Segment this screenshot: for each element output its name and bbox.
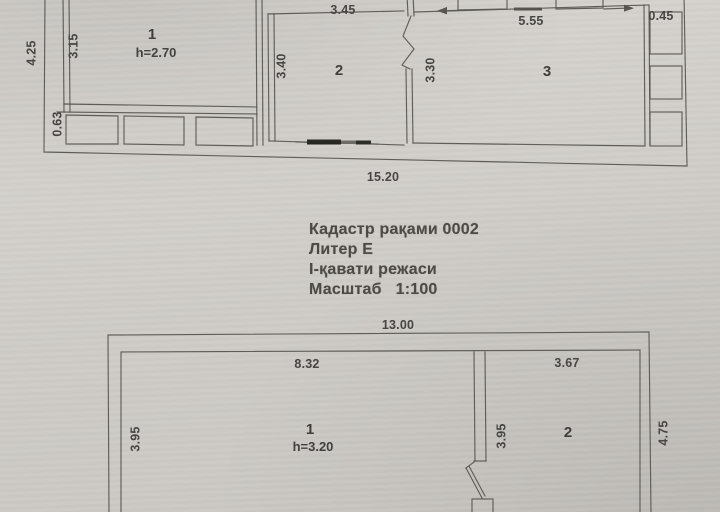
upper-room1-number: 1 — [148, 26, 156, 43]
lower-room1-ceiling-height: h=3.20 — [293, 439, 334, 454]
lower-dim-room1-depth: 3.95 — [128, 426, 142, 451]
liter-line: Литер Е — [309, 240, 479, 260]
upper-dim-bottom-total: 15.20 — [367, 170, 399, 184]
upper-room2-number: 2 — [335, 62, 343, 79]
lower-room1-number: 1 — [306, 421, 314, 438]
upper-dim-room3-width: 5.55 — [518, 14, 543, 28]
upper-room1-ceiling-height: h=2.70 — [136, 45, 177, 60]
lower-dim-room2-depth: 3.95 — [494, 423, 508, 448]
upper-dim-room2-width: 3.45 — [330, 3, 355, 17]
lower-dim-right-outer: 4.75 — [656, 420, 670, 445]
upper-floor-plan-drawing: 3.45 5.55 0.45 4.25 3.15 0.63 3.40 3.30 … — [0, 0, 720, 200]
scale-line: Масштаб 1:100 — [309, 280, 479, 300]
room1-walls — [57, 0, 263, 145]
wall-break-line — [402, 0, 414, 143]
upper-dim-top-right: 0.45 — [648, 9, 673, 23]
title-block: Кадастр рақами 0002 Литер Е I-қавати реж… — [309, 220, 479, 300]
door-symbol — [466, 462, 493, 512]
upper-dim-room3-height: 3.30 — [423, 57, 437, 82]
window-symbol — [296, 140, 378, 145]
wall-niches — [650, 12, 682, 146]
dividing-wall — [474, 352, 486, 461]
upper-dim-left-inner: 3.15 — [66, 33, 80, 58]
porch-columns — [66, 115, 253, 146]
upper-dim-left-bottom: 0.63 — [50, 111, 64, 136]
upper-dim-room2-height: 3.40 — [274, 53, 288, 78]
lower-dim-room2-width: 3.67 — [554, 356, 579, 370]
scanned-floor-plan-document: 3.45 5.55 0.45 4.25 3.15 0.63 3.40 3.30 … — [0, 0, 720, 512]
cadastre-number-line: Кадастр рақами 0002 — [309, 220, 479, 240]
upper-room3-number: 3 — [543, 63, 551, 80]
upper-dim-left-outer: 4.25 — [24, 40, 38, 65]
lower-dim-top-total: 13.00 — [382, 318, 414, 332]
lower-room2-number: 2 — [564, 424, 572, 441]
room-walls — [121, 350, 640, 512]
lower-dim-room1-width: 8.32 — [294, 357, 319, 371]
floor-plan-title-line: I-қавати режаси — [309, 260, 479, 280]
lower-floor-plan-drawing: 13.00 8.32 3.67 3.95 3.95 4.75 1 h=3.20 … — [0, 318, 720, 512]
